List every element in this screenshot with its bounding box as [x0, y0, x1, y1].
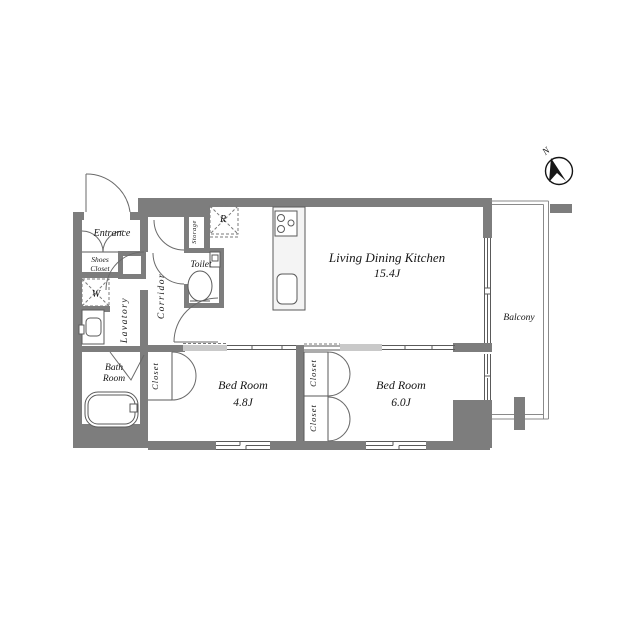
- wall-top-main: [138, 198, 490, 207]
- wall-storage-right: [204, 207, 210, 248]
- wall-right-bottom-block: [453, 400, 492, 448]
- label-bedroom2-area: 6.0J: [391, 397, 411, 409]
- compass-north-label: N: [540, 145, 553, 158]
- wall-entrance-top-left: [73, 212, 84, 220]
- window-bedroom2-side: [483, 354, 492, 400]
- floor-plan: N Entrance Shoes Closet W Lavatory Bath …: [0, 0, 640, 640]
- label-bedroom2: Bed Room: [376, 378, 426, 392]
- floor-plan-drawing: N Entrance Shoes Closet W Lavatory Bath …: [0, 0, 640, 640]
- balcony-bottom-partition: [514, 397, 525, 430]
- label-washer: W: [92, 289, 102, 300]
- wall-hall-lower: [140, 290, 148, 352]
- compass-icon: N: [540, 145, 572, 184]
- label-refrigerator: R: [219, 214, 226, 225]
- wall-bedroom2-top-right: [455, 343, 492, 352]
- label-closet-bedroom2-upper: Closet: [308, 359, 318, 387]
- wall-storage-left: [184, 217, 189, 248]
- label-bedroom1-area: 4.8J: [233, 397, 253, 409]
- label-bath-1: Bath: [105, 363, 123, 373]
- balcony-top-partition: [550, 204, 572, 213]
- sliding-doors: [183, 344, 455, 352]
- wall-hall-upper: [140, 220, 148, 252]
- room-labels: Entrance Shoes Closet W Lavatory Bath Ro…: [90, 214, 535, 432]
- wall-bedroom-divider: [296, 345, 304, 450]
- label-closet-bedroom2-lower: Closet: [308, 404, 318, 432]
- bathtub: [85, 392, 138, 427]
- wall-toilet-bottom: [184, 303, 224, 308]
- kitchen-sink: [277, 274, 297, 304]
- wall-corridor-top: [148, 207, 204, 217]
- wall-right-corner: [483, 198, 492, 238]
- window-bedroom1: [216, 440, 270, 451]
- label-entrance: Entrance: [93, 228, 131, 239]
- sliding-door-bedroom2: [340, 344, 382, 351]
- storage-door: [154, 220, 184, 250]
- label-ldk: Living Dining Kitchen: [328, 250, 445, 265]
- sliding-door-bedroom1: [183, 345, 227, 351]
- label-storage: Storage: [191, 220, 198, 244]
- kitchen-counter: [273, 207, 305, 310]
- label-shoes-closet-1: Shoes: [91, 255, 109, 264]
- label-ldk-area: 15.4J: [374, 266, 401, 280]
- label-bath-2: Room: [102, 374, 125, 384]
- window-bedroom2: [366, 440, 426, 451]
- window-ldk: [483, 238, 492, 343]
- label-closet-bedroom1: Closet: [150, 362, 160, 390]
- wall-bottom: [148, 441, 490, 450]
- hall-niche-inside: [123, 256, 141, 274]
- wall-bottom-left-block: [73, 424, 148, 448]
- wall-lavatory-bath-divider: [73, 346, 148, 352]
- vanity-sink: [79, 310, 104, 344]
- label-bedroom1: Bed Room: [218, 378, 268, 392]
- entrance-door: [86, 174, 130, 212]
- label-lavatory: Lavatory: [120, 297, 130, 344]
- bedroom1-closet-doors: [172, 352, 196, 400]
- label-toilet: Toilet: [190, 260, 212, 270]
- label-corridor: Corridor: [157, 273, 167, 319]
- label-shoes-closet-2: Closet: [90, 264, 110, 273]
- bedroom2-closet-doors: [328, 352, 350, 441]
- wall-bedroom1-top: [140, 345, 185, 352]
- label-balcony: Balcony: [503, 313, 535, 323]
